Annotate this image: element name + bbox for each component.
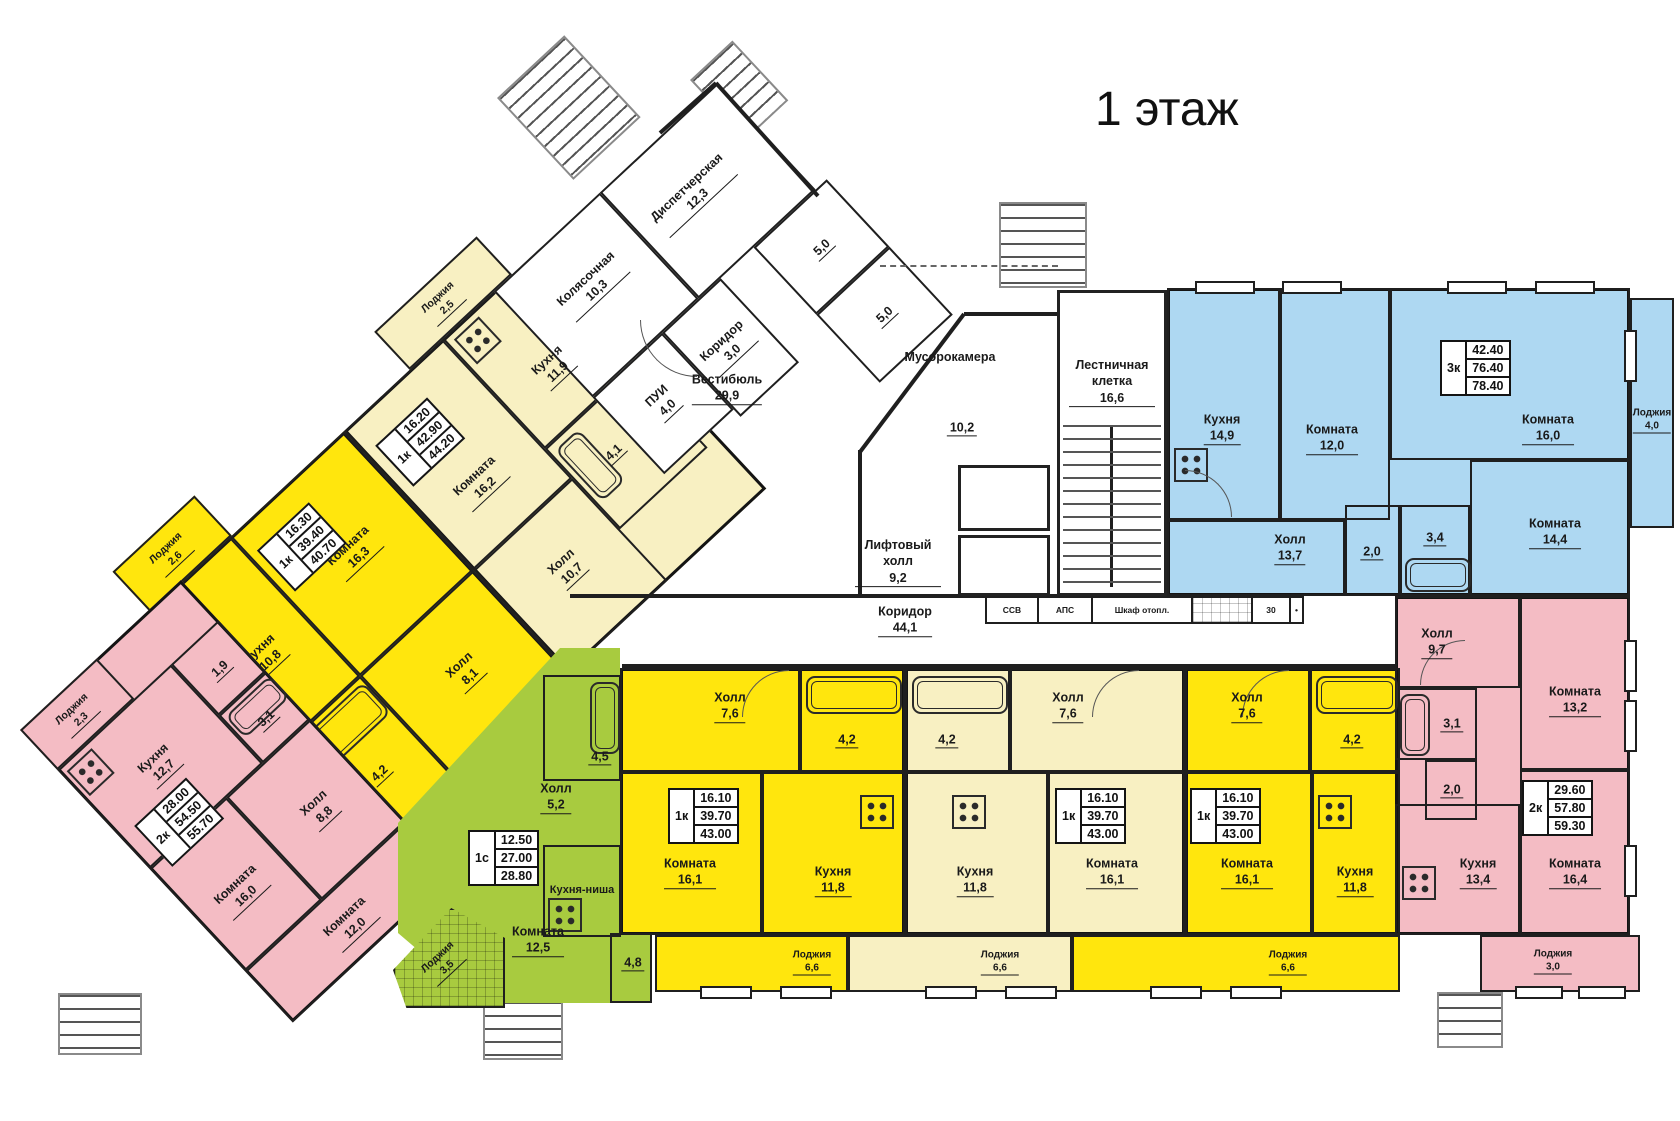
bathtub-icon <box>806 676 902 714</box>
window-marker <box>1447 281 1507 294</box>
window-marker <box>925 986 977 999</box>
bathtub-icon <box>1316 676 1398 714</box>
spec-box: 3к42.4076.4078.40 <box>1440 340 1511 396</box>
window-marker <box>1282 281 1342 294</box>
spec-box: 1к16.1039.7043.00 <box>668 788 739 844</box>
window-marker <box>1515 986 1563 999</box>
closet-ssv: ССВ <box>987 598 1039 622</box>
window-marker <box>700 986 752 999</box>
wall <box>622 664 1395 668</box>
spec-box: 2к29.6057.8059.30 <box>1522 780 1593 836</box>
terrace-outline <box>497 35 641 180</box>
dashed-line <box>880 265 1058 267</box>
closet-30: 30 <box>1253 598 1291 622</box>
spec-box: 1к16.1039.7043.00 <box>1055 788 1126 844</box>
bathtub-icon <box>1400 694 1430 756</box>
stove-icon <box>1318 795 1352 829</box>
bathtub-icon <box>912 676 1008 714</box>
window-marker <box>780 986 832 999</box>
window-marker <box>1624 700 1637 752</box>
entry-stair <box>999 202 1087 288</box>
closet-aps: АПС <box>1039 598 1093 622</box>
page-title: 1 этаж <box>1095 82 1395 137</box>
entry-stair <box>483 1000 563 1060</box>
loggia <box>1072 935 1400 992</box>
closet-heat: Шкаф отопл. <box>1093 598 1193 622</box>
stair-steps <box>1063 425 1161 587</box>
room-hall <box>1167 520 1345 596</box>
window-marker <box>1535 281 1595 294</box>
entry-stair <box>58 993 142 1055</box>
window-marker <box>1624 330 1637 382</box>
elevator-shaft <box>958 535 1050 596</box>
closet-hatch <box>1193 598 1253 622</box>
entry-stair <box>1437 992 1503 1048</box>
room-kitchen <box>1167 288 1280 520</box>
stove-icon <box>1402 866 1436 900</box>
room-hall <box>1010 668 1185 772</box>
window-marker <box>1624 845 1637 897</box>
closet-dot: • <box>1291 598 1302 622</box>
room-living <box>1280 288 1390 520</box>
window-marker <box>1230 986 1282 999</box>
loggia <box>848 935 1072 992</box>
stove-icon <box>860 795 894 829</box>
window-marker <box>1624 640 1637 692</box>
spec-box: 1к16.1039.7043.00 <box>1190 788 1261 844</box>
spec-box: 1с12.5027.0028.80 <box>468 830 539 886</box>
window-marker <box>1195 281 1255 294</box>
tech-closets: ССВ АПС Шкаф отопл. 30 • <box>985 596 1304 624</box>
stove-icon <box>952 795 986 829</box>
elevator-shaft <box>958 465 1050 531</box>
floor-plan: 1 этаж Лоджия2,6 Кухня10,8 Комната16,3 Х… <box>0 0 1680 1121</box>
bathtub-icon <box>590 682 620 754</box>
window-marker <box>1150 986 1202 999</box>
window-marker <box>1578 986 1626 999</box>
window-marker <box>1005 986 1057 999</box>
bathtub-icon <box>1405 558 1471 592</box>
